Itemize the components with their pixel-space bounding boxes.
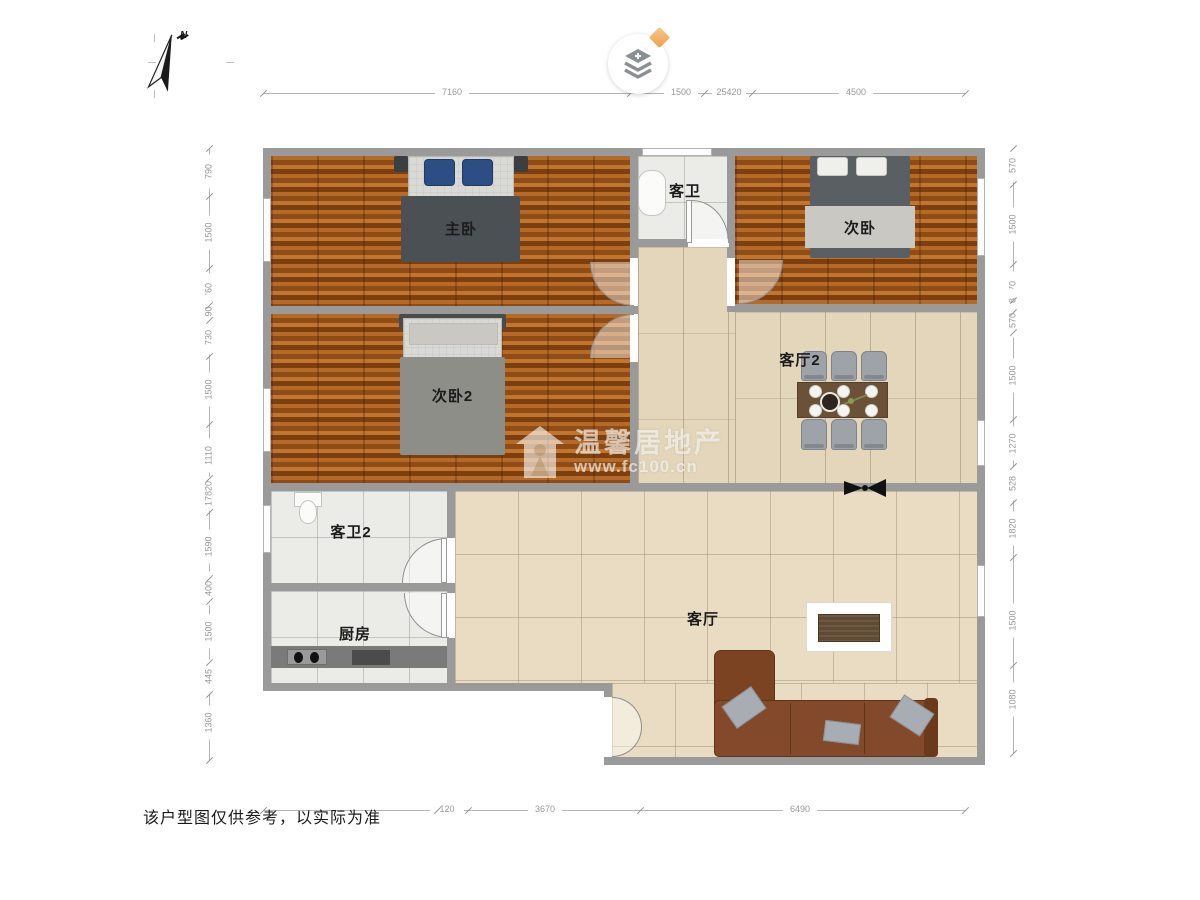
window-icon [263, 388, 271, 452]
pillow-icon [817, 157, 848, 176]
dim-label: 1500 [1008, 359, 1019, 393]
wall-left-column [447, 483, 455, 691]
dim-label: 1270 [1008, 427, 1019, 461]
dim-label: 1500 [204, 373, 215, 407]
dim-tick [206, 757, 213, 764]
room-label-master-bedroom: 主卧 [408, 218, 514, 239]
room-label-living: 客厅 [668, 608, 738, 629]
pillow-icon [856, 157, 887, 176]
compass-label: N [180, 30, 187, 41]
dim-label: 7160 [435, 87, 469, 98]
sofa-seam [864, 703, 865, 754]
dim-label: 1590 [204, 530, 215, 564]
blanket-icon [400, 357, 505, 455]
room-label-bathroom: 客卫 [650, 180, 720, 201]
window-icon [977, 565, 985, 617]
wall-bedroom-bottom [727, 304, 985, 312]
dim-label: 790 [204, 155, 215, 189]
hallway-floor [638, 247, 735, 483]
nightstand-icon [514, 156, 528, 172]
garnish-icon [843, 392, 869, 406]
chair-icon [861, 351, 887, 381]
pillow-icon [424, 159, 455, 186]
compass: N [118, 28, 228, 100]
plate-icon [809, 385, 822, 398]
nightstand-icon [394, 156, 408, 172]
wall-bath2-kitchen [263, 583, 455, 591]
chair-icon [861, 419, 887, 450]
window-icon [977, 178, 985, 256]
wall-bottom-left [263, 683, 612, 691]
dim-label: 1360 [204, 706, 215, 740]
tv-icon [818, 614, 880, 642]
dim-label: 570 [1008, 149, 1019, 183]
window-icon [977, 420, 985, 466]
dim-label: 3670 [528, 804, 562, 815]
room-label-bedroom: 次卧 [808, 217, 912, 238]
dim-label: 1500 [204, 216, 215, 250]
dim-label: 528 [1008, 467, 1019, 501]
disclaimer-text: 该户型图仅供参考，以实际为准 [143, 804, 381, 828]
dim-label: 1110 [204, 439, 215, 473]
dim-label: 1500 [664, 87, 698, 98]
room-label-bedroom2: 次卧2 [400, 385, 505, 406]
door-leaf [441, 538, 447, 583]
pillow-icon [462, 159, 493, 186]
window-icon [642, 148, 712, 156]
door-leaf [686, 200, 692, 243]
sink-basin [287, 649, 327, 665]
sofa-armrest [924, 698, 938, 757]
sofa-pillow-icon [823, 720, 861, 745]
room-label-bathroom2: 客卫2 [315, 521, 387, 542]
pillow-icon [409, 323, 498, 345]
dim-label: 1500 [204, 615, 215, 649]
dim-label: 25420 [712, 87, 746, 98]
wall-master-bed2 [263, 306, 638, 314]
entry-door-opening [604, 697, 612, 757]
room-label-dining: 客厅2 [765, 349, 835, 370]
dim-tick [1010, 750, 1017, 757]
floorplan-canvas: N [0, 0, 1200, 900]
wall-top [263, 148, 985, 156]
dim-label: 730 [204, 321, 215, 355]
door-leaf [441, 593, 447, 638]
layers-plus-icon [621, 47, 655, 81]
stove-icon [352, 650, 390, 665]
door-opening [447, 538, 455, 583]
dim-label: 4500 [839, 87, 873, 98]
window-icon [263, 505, 271, 553]
dim-tick [962, 807, 969, 814]
dim-label: 1500 [1008, 604, 1019, 638]
ceiling-fan-icon [844, 476, 886, 500]
dish-icon [820, 392, 840, 412]
window-icon [263, 198, 271, 262]
dim-label: 1820 [1008, 512, 1019, 546]
sofa-seam [790, 703, 791, 754]
sink-drain-icon [294, 652, 303, 663]
chair-icon [801, 419, 827, 450]
dim-label: 6490 [783, 804, 817, 815]
dim-label: 1080 [1008, 683, 1019, 717]
dim-label: 1500 [1008, 208, 1019, 242]
sink-drain-icon [310, 652, 319, 663]
chair-icon [831, 419, 857, 450]
room-label-kitchen: 厨房 [322, 623, 388, 644]
dim-label: 17820 [204, 477, 215, 511]
dim-tick [962, 90, 969, 97]
wall-bottom [604, 757, 985, 765]
door-opening [727, 258, 735, 306]
